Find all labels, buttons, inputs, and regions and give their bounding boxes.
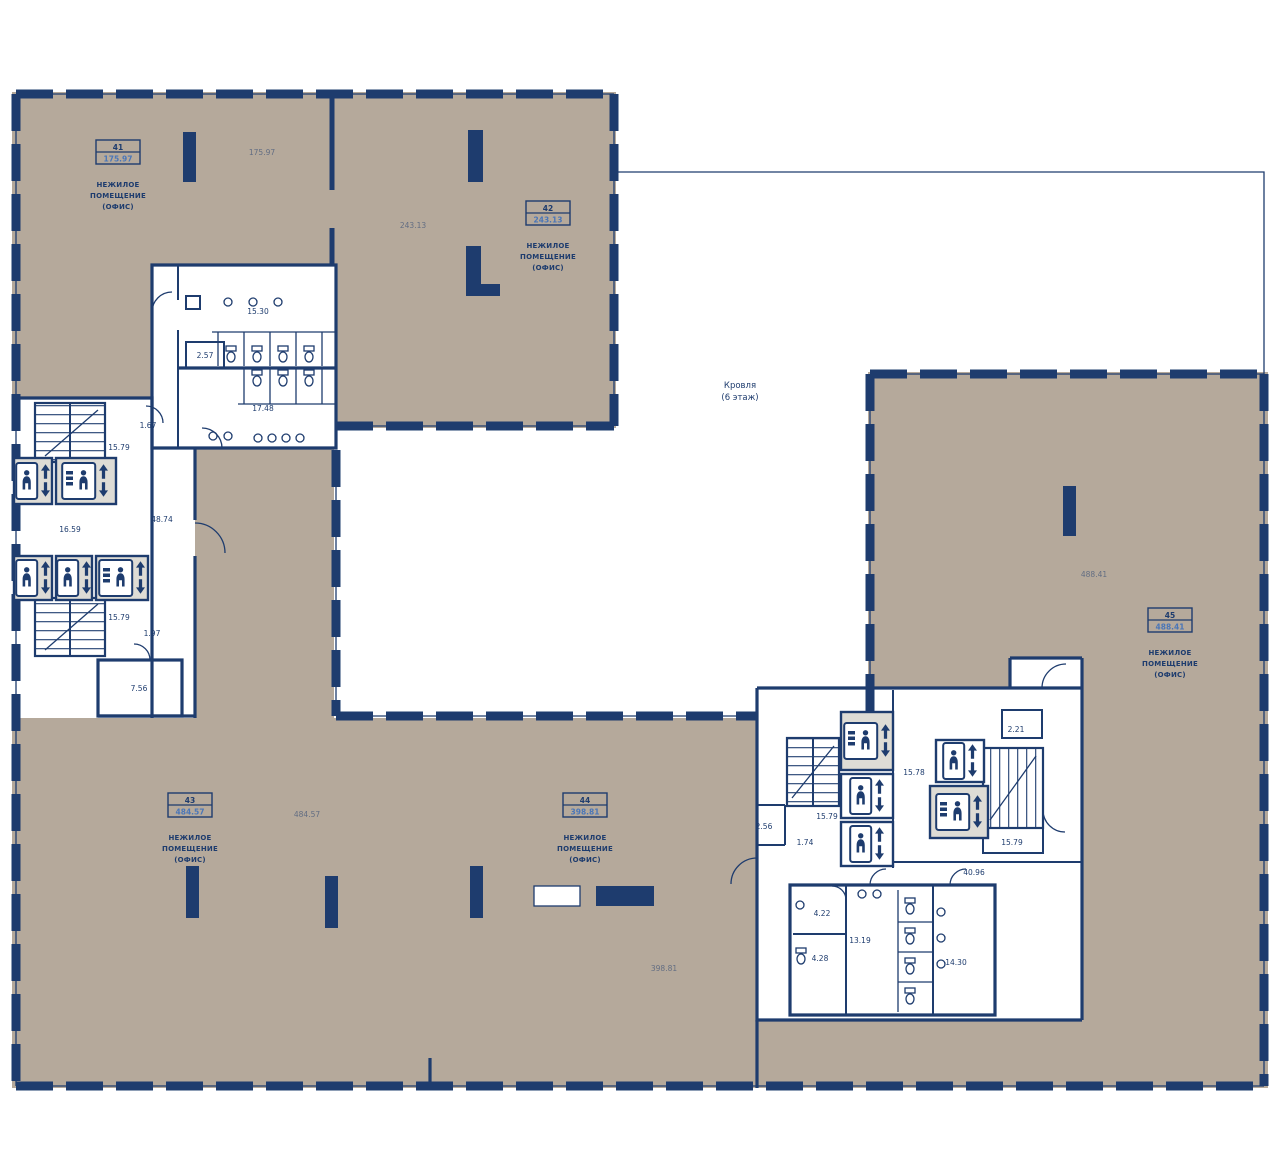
room-type-line: НЕЖИЛОЕ	[526, 242, 569, 250]
room-number: 41	[113, 143, 123, 152]
floor-areas	[12, 92, 1268, 1088]
room-number: 44	[580, 796, 590, 805]
toilet-icon	[304, 346, 314, 362]
toilet-icon	[905, 928, 915, 944]
area-note: 15.78	[903, 768, 925, 777]
toilet-icon	[278, 346, 288, 362]
roof-label-line2: (6 этаж)	[721, 393, 758, 403]
room-type-line: (ОФИС)	[1154, 671, 1186, 679]
area-note: 14.30	[945, 958, 967, 967]
elevator-passenger	[841, 822, 893, 866]
column	[468, 130, 483, 182]
sink-icon	[937, 960, 945, 968]
area-note: 243.13	[400, 221, 426, 230]
room-type-line: (ОФИС)	[174, 856, 206, 864]
column	[325, 876, 338, 928]
toilet-icon	[796, 948, 806, 964]
area-note: 4.22	[814, 909, 831, 918]
elevator-passenger	[936, 740, 984, 782]
room-type-line: НЕЖИЛОЕ	[1148, 649, 1191, 657]
room-area: 175.97	[104, 155, 133, 164]
room-type-line: ПОМЕЩЕНИЕ	[557, 845, 613, 853]
area-note: 48.74	[151, 515, 173, 524]
sink-icon	[937, 934, 945, 942]
area-note: 40.96	[963, 868, 985, 877]
toilet-icon	[226, 346, 236, 362]
area-note: 17.48	[252, 404, 274, 413]
toilet-icon	[278, 370, 288, 386]
room-type-line: ПОМЕЩЕНИЕ	[90, 192, 146, 200]
room-number: 42	[543, 204, 553, 213]
area-note: 1.97	[144, 629, 161, 638]
sink-icon	[282, 434, 290, 442]
column	[466, 284, 500, 296]
sink-icon	[858, 890, 866, 898]
elevator-passenger	[56, 556, 92, 600]
area-note: 16.59	[59, 525, 81, 534]
area-note: 398.81	[651, 964, 677, 973]
right-core-ext	[1010, 658, 1082, 688]
urinal-icon	[249, 298, 257, 306]
column	[183, 132, 196, 182]
toilet-icon	[905, 898, 915, 914]
staircase-right-1	[787, 738, 839, 806]
counter-outline	[534, 886, 580, 906]
area-note: 15.79	[108, 443, 130, 452]
room-area: 243.13	[534, 216, 563, 225]
elevator-freight	[841, 712, 893, 770]
area-note: 175.97	[249, 148, 275, 157]
area-note: 15.79	[816, 812, 838, 821]
area-note: 2.57	[197, 351, 214, 360]
area-note: 1.74	[797, 838, 814, 847]
room-type-line: ПОМЕЩЕНИЕ	[1142, 660, 1198, 668]
area-note: 2.21	[1008, 725, 1025, 734]
elevator-passenger	[841, 774, 893, 818]
sink-icon	[937, 908, 945, 916]
staircase-left-lower	[35, 598, 105, 656]
column	[470, 866, 483, 918]
toilet-icon	[252, 370, 262, 386]
room-number: 43	[185, 796, 195, 805]
elevator-passenger	[14, 458, 52, 504]
roof-outline	[614, 172, 1264, 374]
sink-icon	[873, 890, 881, 898]
floor-plan-canvas: 41 175.97 НЕЖИЛОЕ ПОМЕЩЕНИЕ (ОФИС) 42 24…	[0, 0, 1280, 1157]
roof-label-line1: Кровля	[724, 381, 756, 391]
sink-icon	[296, 434, 304, 442]
elevator-freight	[96, 556, 148, 600]
elevator-passenger	[14, 556, 52, 600]
floor-plan: 41 175.97 НЕЖИЛОЕ ПОМЕЩЕНИЕ (ОФИС) 42 24…	[0, 0, 1280, 1157]
area-note: 13.19	[849, 936, 871, 945]
area-note: 488.41	[1081, 570, 1107, 579]
room-type-line: ПОМЕЩЕНИЕ	[520, 253, 576, 261]
room-type-line: НЕЖИЛОЕ	[96, 181, 139, 189]
urinal-icon	[224, 298, 232, 306]
room-type-line: (ОФИС)	[102, 203, 134, 211]
area-note: 7.56	[131, 684, 148, 693]
room-area: 484.57	[176, 808, 205, 817]
column	[1063, 486, 1076, 536]
room-area: 398.81	[571, 808, 600, 817]
area-note: 2.56	[756, 822, 773, 831]
sink-icon	[224, 432, 232, 440]
area-note: 484.57	[294, 810, 320, 819]
sink-icon	[796, 901, 804, 909]
area-note: 15.79	[1001, 838, 1023, 847]
room-type-line: (ОФИС)	[569, 856, 601, 864]
toilet-icon	[252, 346, 262, 362]
room-area: 488.41	[1156, 623, 1185, 632]
staircase-left-upper	[35, 403, 105, 462]
room-type-line: (ОФИС)	[532, 264, 564, 272]
column	[186, 866, 199, 918]
room-number: 45	[1165, 611, 1175, 620]
area-note: 15.30	[247, 307, 269, 316]
sink-icon	[268, 434, 276, 442]
area-note: 15.79	[108, 613, 130, 622]
room-type-line: НЕЖИЛОЕ	[168, 834, 211, 842]
toilet-icon	[905, 958, 915, 974]
sink-icon	[254, 434, 262, 442]
area-note: 4.28	[812, 954, 829, 963]
room-type-line: НЕЖИЛОЕ	[563, 834, 606, 842]
toilet-icon	[905, 988, 915, 1004]
elevator-freight	[56, 458, 116, 504]
area-note: 1.67	[140, 421, 157, 430]
elevator-freight	[930, 786, 988, 838]
urinal-icon	[274, 298, 282, 306]
counter-solid	[596, 886, 654, 906]
room-type-line: ПОМЕЩЕНИЕ	[162, 845, 218, 853]
toilet-icon	[304, 370, 314, 386]
